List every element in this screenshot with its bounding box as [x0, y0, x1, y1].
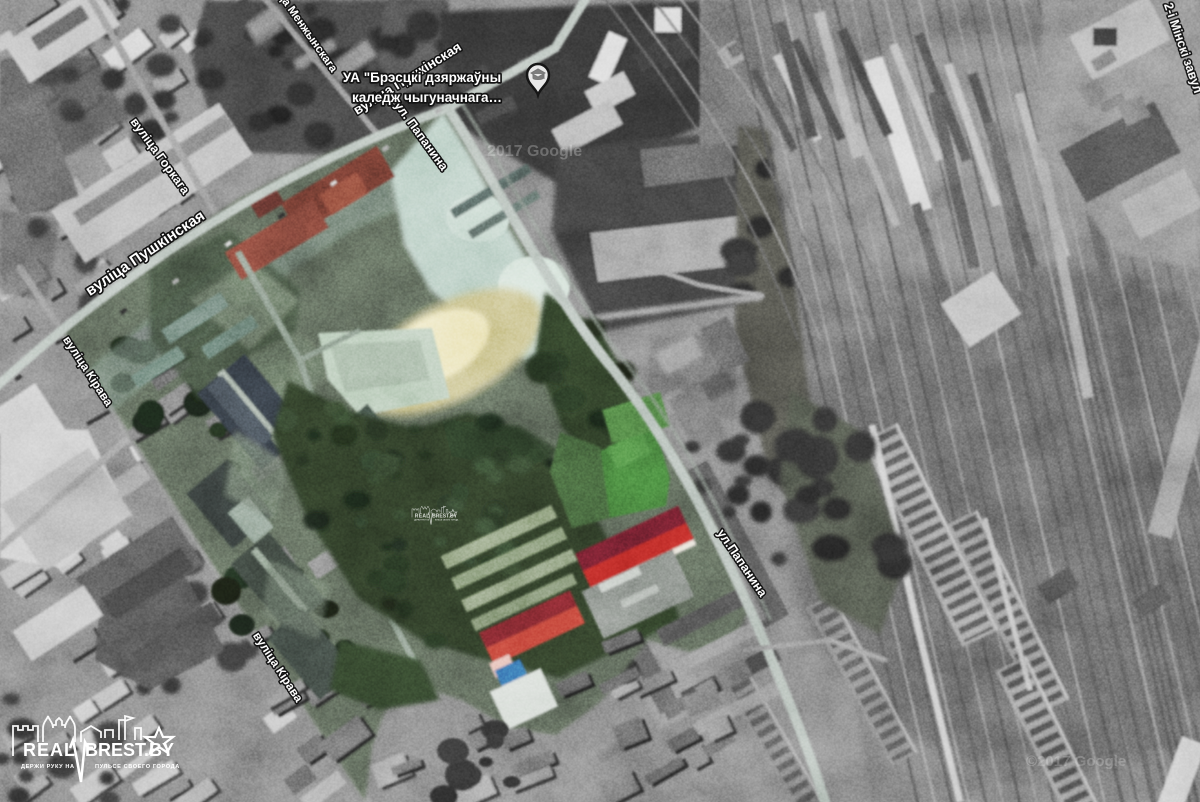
svg-text:2017 Google: 2017 Google: [487, 143, 582, 160]
svg-text:©2017 Google: ©2017 Google: [1026, 753, 1126, 770]
svg-text:каледж чыгуначнага…: каледж чыгуначнага…: [352, 90, 502, 105]
svg-text:BREST.BY: BREST.BY: [85, 740, 174, 760]
svg-text:ДЕРЖИ РУКУ НА: ДЕРЖИ РУКУ НА: [21, 764, 75, 770]
svg-text:REAL: REAL: [23, 740, 76, 760]
svg-text:УА "Брэсцкі дзяржаўны: УА "Брэсцкі дзяржаўны: [343, 70, 501, 85]
svg-text:ПУЛЬСЕ СВОЕГО ГОРОДА: ПУЛЬСЕ СВОЕГО ГОРОДА: [95, 764, 180, 770]
